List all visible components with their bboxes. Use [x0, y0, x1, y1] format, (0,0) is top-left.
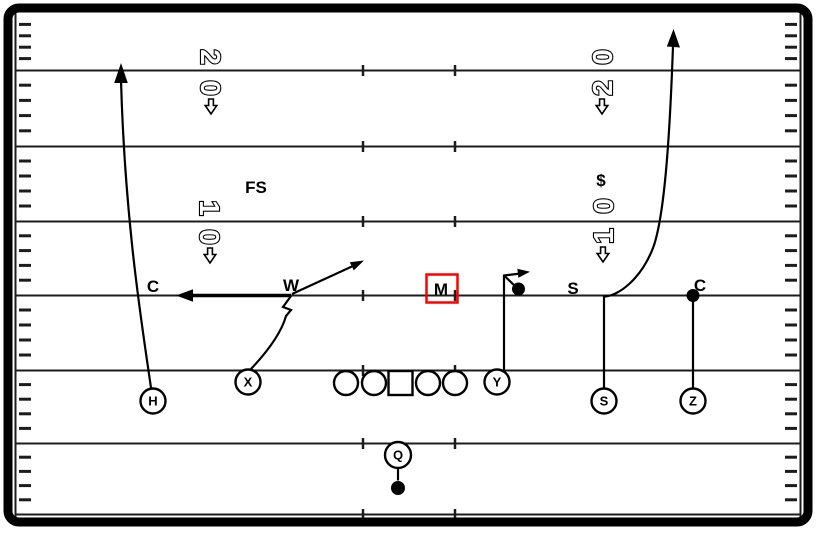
yard-number-digit: 1	[588, 228, 619, 244]
mike-label: M	[434, 280, 448, 299]
player-z-label: Z	[689, 394, 697, 409]
will-label: W	[283, 276, 300, 295]
lineman-guard-left	[334, 371, 358, 395]
yard-number-digit: 2	[195, 49, 226, 65]
corner-right-label: C	[694, 276, 706, 295]
diagonal-arrowhead-icon	[350, 261, 364, 271]
lineman-guard-right	[416, 371, 440, 395]
goal-direction-arrow-icon	[205, 99, 217, 114]
sam-label: S	[567, 279, 578, 298]
page-border	[8, 8, 808, 522]
lineman-tackle-right	[443, 371, 467, 395]
offense-players: H X Y S Z Q	[141, 370, 706, 469]
h-route-arrowhead-icon	[114, 63, 128, 83]
h-route	[121, 80, 151, 388]
goal-direction-arrow-icon	[204, 248, 216, 263]
player-y-label: Y	[493, 375, 502, 390]
player-h: H	[141, 389, 166, 414]
player-q-label: Q	[393, 448, 403, 463]
play-diagram-page: 2 0 1 0 0 2 0 1 FS	[0, 0, 816, 528]
player-x: X	[236, 370, 261, 395]
goal-direction-arrow-icon	[597, 247, 609, 262]
yard-number-left-10: 1 0	[194, 200, 225, 263]
yard-number-right-10: 0 1	[588, 198, 619, 262]
player-x-label: X	[244, 375, 253, 390]
player-z: Z	[681, 389, 706, 414]
yard-number-digit: 0	[588, 198, 619, 214]
yard-number-digit: 2	[587, 80, 618, 96]
player-s-label: S	[600, 394, 609, 409]
yard-lines	[15, 8, 801, 521]
yard-number-digit: 0	[587, 49, 618, 65]
drag-left-arrowhead-icon	[176, 289, 193, 302]
q-dropback-dot	[391, 481, 405, 495]
yard-number-digit: 0	[195, 80, 226, 96]
play-diagram-canvas: 2 0 1 0 0 2 0 1 FS	[0, 0, 816, 528]
corner-left-label: C	[147, 277, 159, 296]
sideline-hash-marks	[19, 24, 797, 499]
y-route-arrowhead-icon	[517, 269, 530, 278]
goal-direction-arrow-icon	[596, 99, 608, 114]
player-q: Q	[385, 442, 411, 468]
player-h-label: H	[148, 394, 157, 409]
free-safety-label: FS	[245, 178, 267, 197]
s-wheel-route	[604, 46, 673, 389]
yard-number-right-20: 0 2	[587, 49, 618, 114]
yard-number-digit: 0	[194, 229, 225, 245]
s-route-arrowhead-icon	[667, 29, 680, 48]
yard-number-digit: 1	[194, 200, 225, 216]
y-route-dot	[512, 283, 525, 296]
center-square	[389, 371, 413, 395]
player-s: S	[592, 389, 617, 414]
x-route-diagonal	[292, 266, 353, 294]
lineman-tackle-left	[362, 371, 386, 395]
yard-number-left-20: 2 0	[195, 49, 226, 114]
money-label: $	[596, 171, 606, 190]
defense-labels: FS $ C W M S C	[147, 171, 706, 303]
player-y: Y	[485, 370, 510, 395]
x-route-stem	[251, 296, 291, 369]
routes	[114, 29, 699, 495]
